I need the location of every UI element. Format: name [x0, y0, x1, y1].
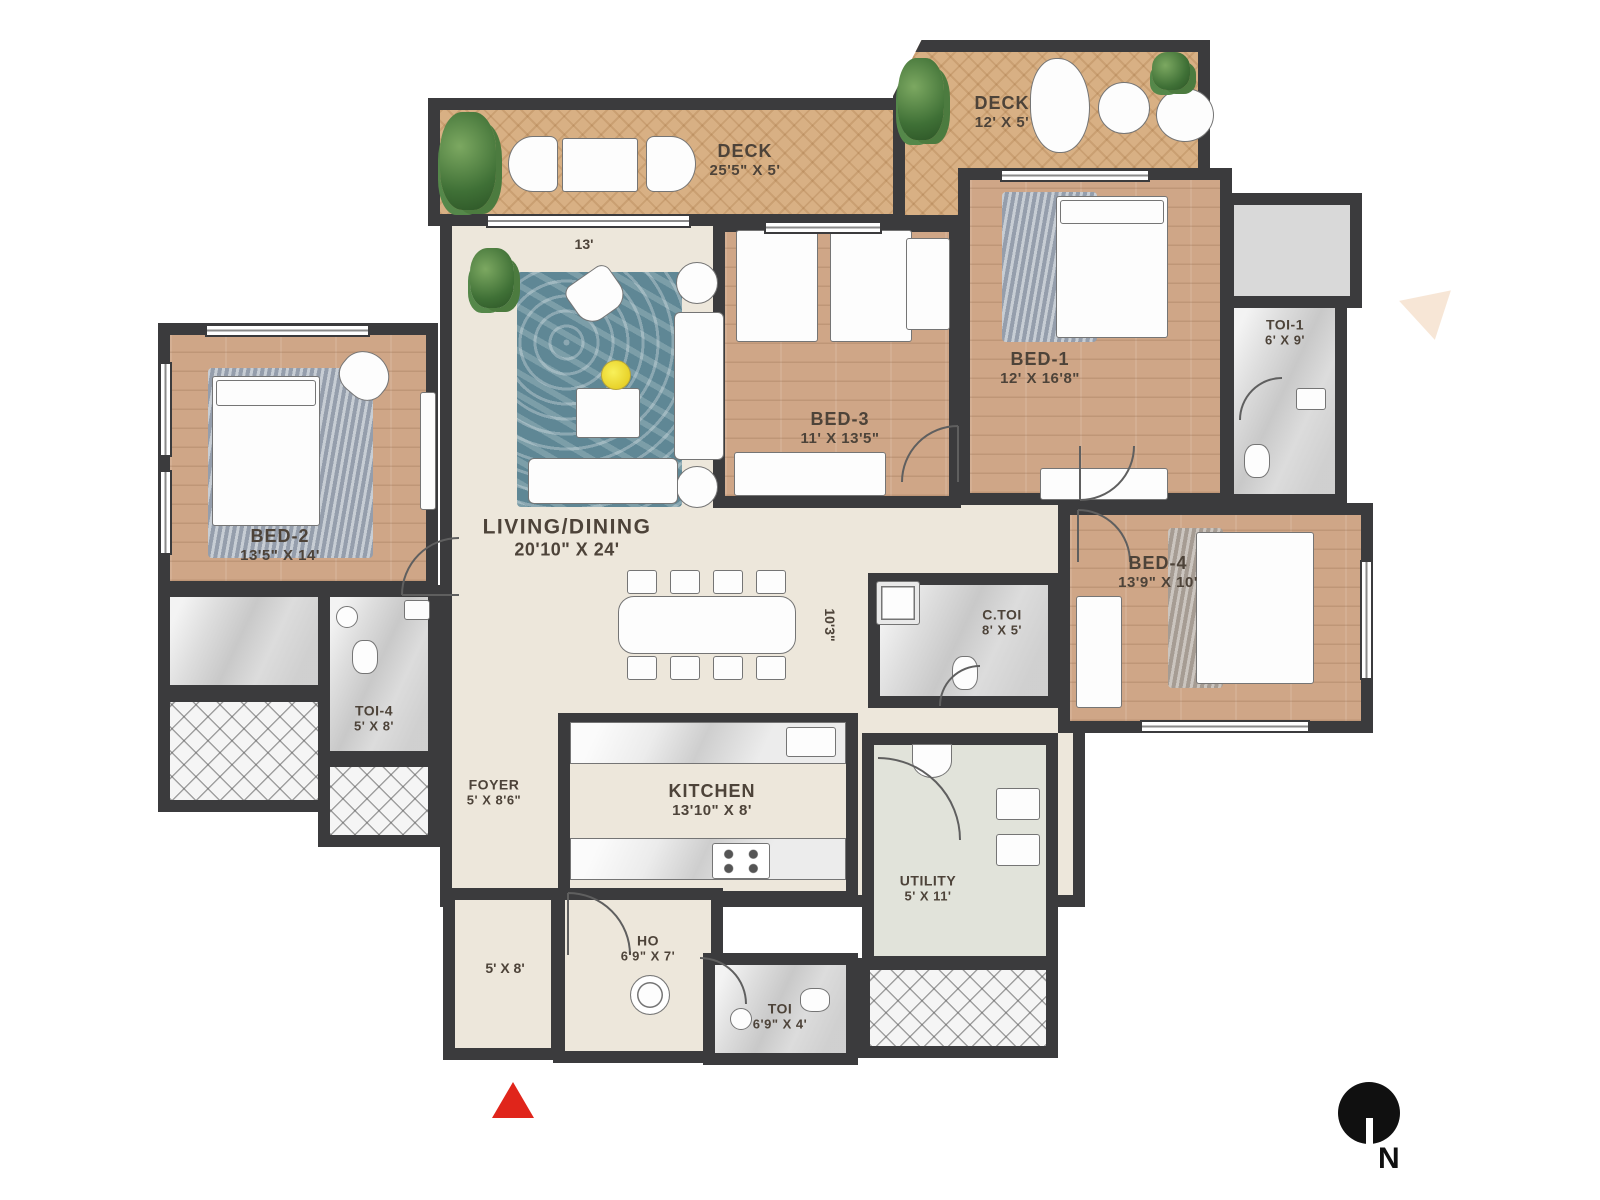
deck-table	[562, 138, 638, 192]
dining-table	[618, 596, 796, 654]
window	[159, 362, 172, 457]
room-name: BED-3	[801, 409, 880, 430]
room-name: UTILITY	[900, 873, 956, 889]
plant	[470, 248, 514, 308]
washer	[996, 834, 1040, 866]
room-dims: 20'10" X 24'	[483, 540, 652, 561]
dining-chair	[670, 656, 700, 680]
room-dims: 13'5" X 14'	[240, 547, 320, 564]
toi-label: TOI 6'9" X 4'	[753, 1001, 807, 1032]
sofa	[528, 458, 678, 504]
deck-main-label: DECK 25'5" X 5'	[710, 141, 781, 179]
entry-arrow	[492, 1082, 534, 1118]
living-label: LIVING/DINING 20'10" X 24'	[483, 516, 652, 561]
toilet	[1244, 444, 1270, 478]
exterior-marker	[1391, 276, 1451, 340]
bed	[736, 230, 818, 342]
dining-chair	[713, 570, 743, 594]
storage-shaft	[158, 690, 330, 812]
bed	[1196, 532, 1314, 684]
room-name: TOI	[753, 1001, 807, 1017]
ctoi-label: C.TOI 8' X 5'	[982, 607, 1022, 638]
coffee-table	[576, 388, 640, 438]
deck-chair	[646, 136, 696, 192]
deck-decor	[1030, 58, 1090, 153]
window	[1000, 169, 1150, 182]
pouf	[1098, 82, 1150, 134]
room-dims: 13'9" X 10'	[1118, 574, 1198, 591]
washbasin	[336, 606, 358, 628]
floor-plan: DECK 25'5" X 5' DECK 12' X 5' LIVING/DIN…	[0, 0, 1600, 1200]
room-dims: 12' X 16'8"	[1000, 370, 1080, 387]
plant	[1152, 52, 1190, 90]
kitchen-counter	[570, 838, 846, 880]
bed1-label: BED-1 12' X 16'8"	[1000, 349, 1080, 387]
room-name: HO	[621, 933, 675, 949]
cooktop-hob	[712, 843, 770, 879]
bed	[830, 230, 912, 342]
room-dims: 12' X 5'	[974, 114, 1029, 131]
plant	[440, 112, 496, 210]
dining-chair	[670, 570, 700, 594]
wardrobe	[420, 392, 436, 510]
dim-dining-length: 10'3"	[822, 608, 838, 641]
utility-label: UTILITY 5' X 11'	[900, 873, 956, 904]
room-dims: 8' X 5'	[982, 623, 1022, 638]
shower	[876, 581, 920, 625]
window	[205, 324, 370, 337]
room-dims: 5' X 8'	[354, 719, 394, 734]
room-name: TOI-1	[1265, 317, 1305, 333]
room-dims: 5' X 8'6"	[467, 793, 521, 808]
room-name: FOYER	[467, 777, 521, 793]
room-name: KITCHEN	[669, 781, 756, 802]
room-name: DECK	[710, 141, 781, 162]
service-duct	[858, 958, 1058, 1058]
room-dims: 5' X 11'	[900, 889, 956, 904]
room-name: DECK	[974, 93, 1029, 114]
washbasin	[404, 600, 430, 620]
kitchen-sink	[786, 727, 836, 757]
window	[1140, 720, 1310, 733]
bed3-label: BED-3 11' X 13'5"	[801, 409, 880, 447]
bed2-label: BED-2 13'5" X 14'	[240, 526, 320, 564]
dining-chair	[627, 570, 657, 594]
room-name: BED-2	[240, 526, 320, 547]
washer	[996, 788, 1040, 820]
window	[159, 470, 172, 555]
linen-storage	[318, 755, 440, 847]
washbasin	[730, 1008, 752, 1030]
window	[1360, 560, 1373, 680]
window	[764, 221, 882, 234]
fan-chair	[1156, 88, 1214, 142]
utility-sink	[912, 744, 952, 778]
pillow	[1060, 200, 1164, 224]
window	[486, 214, 691, 228]
room-name: BED-4	[1118, 553, 1198, 574]
washbasin	[1296, 388, 1326, 410]
foyer-label: FOYER 5' X 8'6"	[467, 777, 521, 808]
dim-living-width: 13'	[575, 236, 594, 252]
wardrobe	[1076, 596, 1122, 708]
room-dims: 6'9" X 7'	[621, 949, 675, 964]
desk	[906, 238, 950, 330]
dresser-area	[158, 585, 330, 697]
side-table	[676, 262, 718, 304]
side-table	[676, 466, 718, 508]
room-name: LIVING/DINING	[483, 516, 652, 540]
service-ledge	[1222, 193, 1362, 308]
compass-needle	[1366, 1118, 1373, 1148]
wardrobe	[1040, 468, 1168, 500]
dining-chair	[756, 656, 786, 680]
ho-label: HO 6'9" X 7'	[621, 933, 675, 964]
compass-north-label: N	[1378, 1142, 1400, 1176]
room-name: TOI-4	[354, 703, 394, 719]
sofa	[674, 312, 724, 460]
room-dims: 11' X 13'5"	[801, 430, 880, 447]
plant	[898, 58, 944, 140]
room-dims: 13'10" X 8'	[669, 802, 756, 819]
pillow	[216, 380, 316, 406]
deck-2-label: DECK 12' X 5'	[974, 93, 1029, 131]
toi4-label: TOI-4 5' X 8'	[354, 703, 394, 734]
room-dims: 6'9" X 4'	[753, 1017, 807, 1032]
room-ho	[553, 888, 723, 1063]
kitchen-label: KITCHEN 13'10" X 8'	[669, 781, 756, 819]
room-name: BED-1	[1000, 349, 1080, 370]
room-dims: 6' X 9'	[1265, 333, 1305, 348]
dining-chair	[713, 656, 743, 680]
dining-chair	[627, 656, 657, 680]
dining-chair	[756, 570, 786, 594]
flower-decor	[601, 360, 631, 390]
deck-chair	[508, 136, 558, 192]
toilet	[352, 640, 378, 674]
wardrobe	[734, 452, 886, 496]
washbasin	[630, 975, 670, 1015]
toilet	[952, 656, 978, 690]
bed4-label: BED-4 13'9" X 10'	[1118, 553, 1198, 591]
dim-entry-size: 5' X 8'	[485, 960, 524, 976]
room-dims: 25'5" X 5'	[710, 162, 781, 179]
toi1-label: TOI-1 6' X 9'	[1265, 317, 1305, 348]
room-name: C.TOI	[982, 607, 1022, 623]
